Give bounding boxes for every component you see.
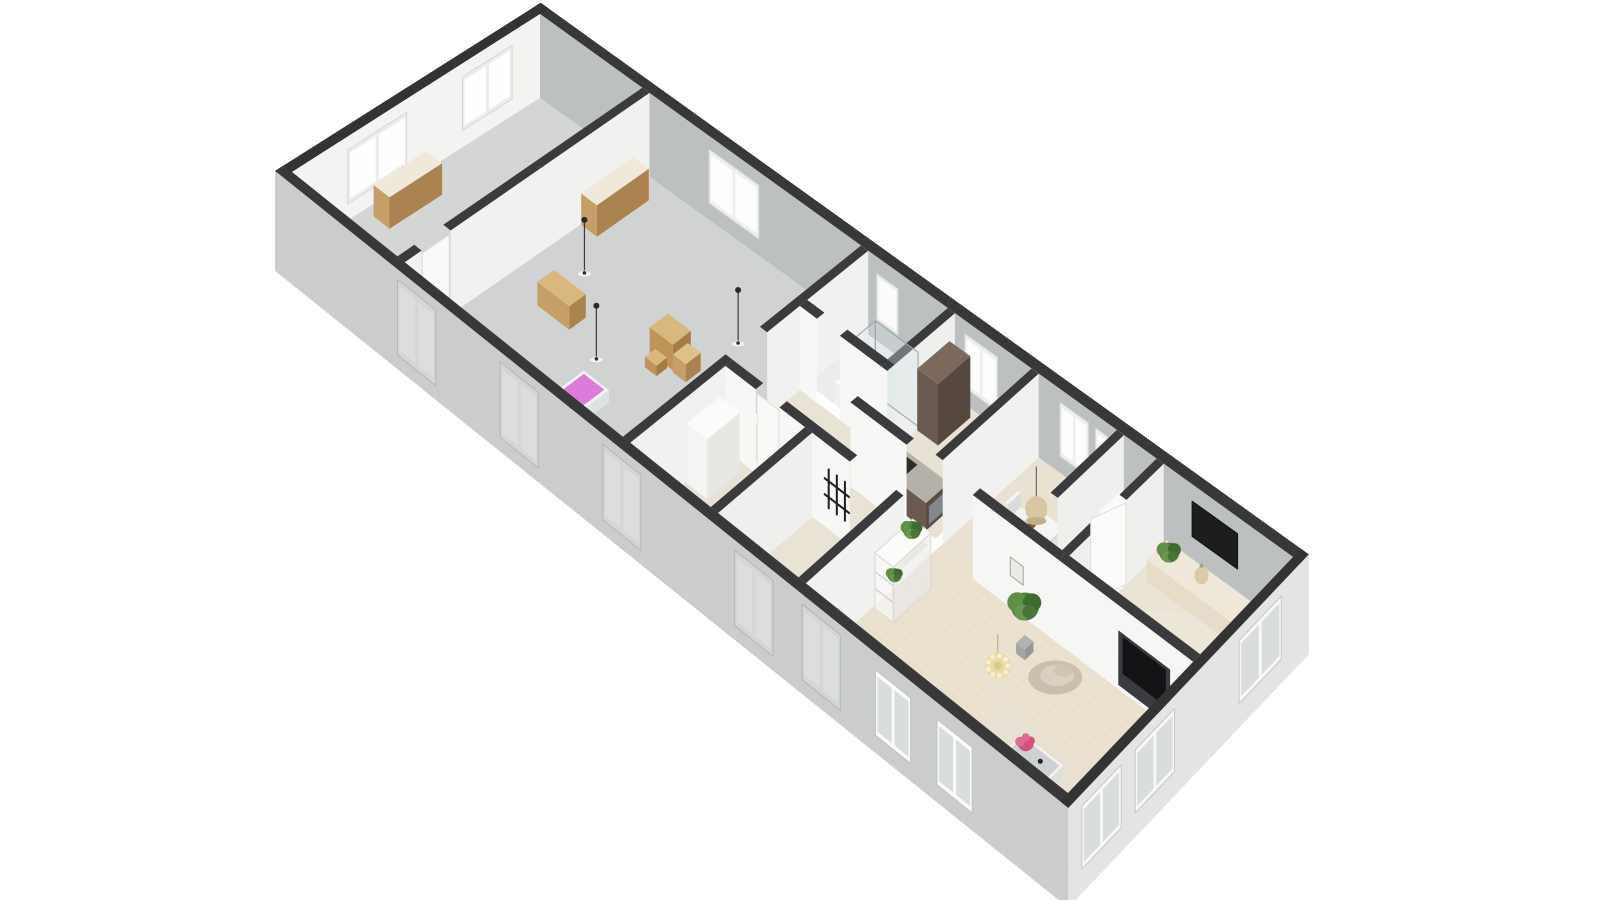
floorplan-3d-canvas[interactable]: [0, 0, 1600, 900]
lounge-chair: [1028, 660, 1082, 694]
floorplan-page: 3D isometric floor plan: [0, 0, 1600, 900]
office-lamp-body: [1195, 566, 1209, 584]
coffee-table-candle: [1038, 759, 1043, 764]
office-lamp-top: [1200, 564, 1204, 568]
